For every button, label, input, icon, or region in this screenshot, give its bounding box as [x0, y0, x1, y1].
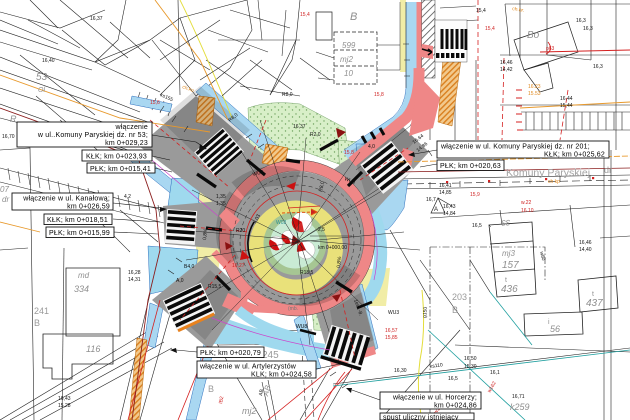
svg-text:PŁK; km 0+015,99: PŁK; km 0+015,99: [49, 230, 110, 237]
svg-text:2,5: 2,5: [318, 227, 325, 233]
svg-text:PŁK; km 0+020,79: PŁK; km 0+020,79: [200, 350, 261, 357]
svg-text:dr: dr: [2, 195, 9, 204]
svg-text:16,37: 16,37: [90, 16, 103, 22]
svg-text:1,35: 1,35: [216, 194, 226, 200]
svg-text:15,8: 15,8: [374, 92, 384, 98]
svg-text:spust uliczny istniejący: spust uliczny istniejący: [383, 415, 459, 420]
svg-text:16,71: 16,71: [512, 394, 525, 400]
svg-text:14,42: 14,42: [500, 67, 513, 73]
svg-text:15.53: 15.53: [528, 91, 541, 97]
svg-text:Ol: Ol: [38, 87, 45, 94]
svg-text:16,50: 16,50: [464, 356, 477, 362]
svg-text:md: md: [78, 271, 90, 280]
svg-text:0,8%: 0,8%: [336, 256, 343, 268]
svg-text:56: 56: [550, 324, 560, 334]
svg-text:R2,0: R2,0: [310, 132, 321, 138]
svg-text:16,1: 16,1: [490, 370, 500, 376]
svg-text:km 0+000,00: km 0+000,00: [318, 245, 347, 251]
svg-text:km 0+026,59: km 0+026,59: [67, 204, 110, 211]
svg-text:Komuny Paryskiej: Komuny Paryskiej: [506, 167, 590, 179]
svg-text:16,46: 16,46: [579, 240, 592, 246]
svg-text:16,57: 16,57: [385, 328, 398, 334]
svg-text:B: B: [452, 305, 458, 315]
svg-text:włączenie w ul. Artylerzystów: włączenie w ul. Artylerzystów: [199, 364, 297, 371]
svg-text:włączenie w ul. Horcerzy;: włączenie w ul. Horcerzy;: [392, 395, 477, 402]
svg-text:334: 334: [74, 284, 89, 294]
svg-text:15,44: 15,44: [560, 103, 573, 109]
svg-text:436: 436: [501, 284, 518, 295]
svg-text:R8,0: R8,0: [282, 92, 293, 98]
svg-text:157: 157: [502, 260, 519, 271]
svg-text:włączenie w ul. Komuny Paryski: włączenie w ul. Komuny Paryskiej dz. nr …: [440, 144, 590, 151]
svg-text:R15,5: R15,5: [208, 284, 222, 290]
svg-text:16,70: 16,70: [2, 134, 15, 140]
svg-text:0,8%: 0,8%: [202, 228, 209, 240]
svg-text:4,0: 4,0: [368, 144, 375, 150]
svg-text:t: t: [505, 277, 507, 284]
svg-text:15,6: 15,6: [150, 100, 160, 106]
svg-text:km 0+029,23: km 0+029,23: [105, 140, 148, 147]
svg-text:włączenie: włączenie: [114, 124, 148, 131]
svg-text:mj3: mj3: [502, 249, 515, 258]
svg-text:16.23: 16.23: [528, 84, 541, 90]
svg-text:16,7: 16,7: [426, 197, 436, 203]
svg-text:w.22: w.22: [521, 200, 532, 206]
svg-text:B: B: [34, 318, 40, 328]
svg-text:dr: dr: [604, 165, 612, 175]
svg-text:16,37: 16,37: [293, 124, 306, 130]
svg-text:437: 437: [586, 298, 603, 309]
svg-text:k259: k259: [510, 402, 530, 412]
svg-text:(mb.: (mb.: [288, 306, 298, 312]
svg-text:241: 241: [34, 306, 49, 316]
svg-text:A,0: A,0: [176, 278, 184, 284]
svg-text:WU3: WU3: [388, 310, 399, 316]
svg-text:W02: W02: [276, 220, 287, 226]
svg-text:15,4: 15,4: [485, 26, 495, 32]
svg-text:10: 10: [344, 69, 353, 78]
svg-text:16,28: 16,28: [128, 270, 141, 276]
svg-text:245: 245: [262, 350, 279, 361]
svg-text:203: 203: [452, 292, 467, 302]
svg-text:4,2: 4,2: [124, 194, 131, 200]
svg-text:włączenie w ul. Kanałową;: włączenie w ul. Kanałową;: [22, 196, 110, 203]
svg-text:KLK; km 0+024,58: KLK; km 0+024,58: [251, 372, 312, 379]
svg-text:14,85: 14,85: [439, 190, 452, 196]
svg-text:B: B: [208, 384, 214, 394]
svg-text:15,85: 15,85: [385, 335, 398, 341]
svg-text:16,43: 16,43: [443, 204, 456, 210]
svg-text:ch kp: ch kp: [548, 179, 560, 185]
svg-text:16,30: 16,30: [394, 368, 407, 374]
svg-text:KŁK; km 0+025,62: KŁK; km 0+025,62: [544, 152, 605, 159]
svg-text:14,31: 14,31: [128, 277, 141, 283]
svg-text:R18,5: R18,5: [300, 270, 314, 276]
svg-text:15,28: 15,28: [58, 403, 71, 409]
svg-text:PŁK; km 0+015,41: PŁK; km 0+015,41: [90, 166, 151, 173]
svg-text:16,41: 16,41: [439, 183, 452, 189]
svg-text:16,3: 16,3: [583, 26, 593, 32]
svg-text:16,40: 16,40: [42, 58, 55, 64]
svg-text:14,84: 14,84: [443, 211, 456, 217]
svg-text:53: 53: [36, 72, 48, 83]
svg-text:p63: p63: [546, 46, 555, 52]
svg-text:WU8: WU8: [296, 324, 307, 330]
svg-text:1,35: 1,35: [216, 201, 226, 207]
svg-text:16,44: 16,44: [560, 96, 573, 102]
svg-text:A: A: [434, 207, 438, 213]
svg-text:15,4: 15,4: [300, 12, 310, 18]
svg-text:599: 599: [342, 41, 356, 50]
svg-text:15,8: 15,8: [344, 150, 354, 156]
svg-text:16,3: 16,3: [576, 18, 586, 24]
svg-text:km 0+024,86: km 0+024,86: [434, 403, 477, 410]
svg-text:Bo: Bo: [527, 30, 540, 41]
svg-text:w ul..Komuny Paryskiej dz. nr: w ul..Komuny Paryskiej dz. nr 53;: [37, 132, 148, 139]
svg-text:16,5: 16,5: [472, 223, 482, 229]
svg-text:g150: g150: [422, 306, 429, 318]
svg-text:07: 07: [0, 185, 9, 194]
svg-text:116: 116: [86, 344, 100, 354]
svg-text:PŁK; km 0+020,63: PŁK; km 0+020,63: [440, 163, 501, 170]
svg-text:B: B: [350, 11, 357, 23]
svg-text:33: 33: [501, 218, 511, 227]
svg-text:16,43: 16,43: [58, 396, 71, 402]
svg-text:R20: R20: [236, 228, 245, 234]
svg-text:B4,0: B4,0: [184, 264, 195, 270]
svg-text:R: R: [10, 114, 17, 124]
svg-text:16,46: 16,46: [500, 60, 513, 66]
svg-text:15,9: 15,9: [470, 192, 480, 198]
svg-text:mj2: mj2: [340, 55, 353, 64]
svg-text:14,40: 14,40: [579, 247, 592, 253]
svg-text:t: t: [592, 291, 594, 298]
svg-text:16,5: 16,5: [448, 376, 458, 382]
svg-text:15,30: 15,30: [464, 364, 477, 370]
svg-text:16.10: 16.10: [521, 208, 534, 214]
svg-text:KŁK; km 0+018,51: KŁK; km 0+018,51: [47, 217, 108, 224]
svg-text:16,27: 16,27: [232, 263, 245, 269]
svg-text:mj2: mj2: [242, 406, 257, 416]
svg-text:KŁK; km 0+023,93: KŁK; km 0+023,93: [86, 154, 147, 161]
svg-text:15,4: 15,4: [476, 8, 486, 14]
svg-text:16,3: 16,3: [593, 64, 603, 70]
